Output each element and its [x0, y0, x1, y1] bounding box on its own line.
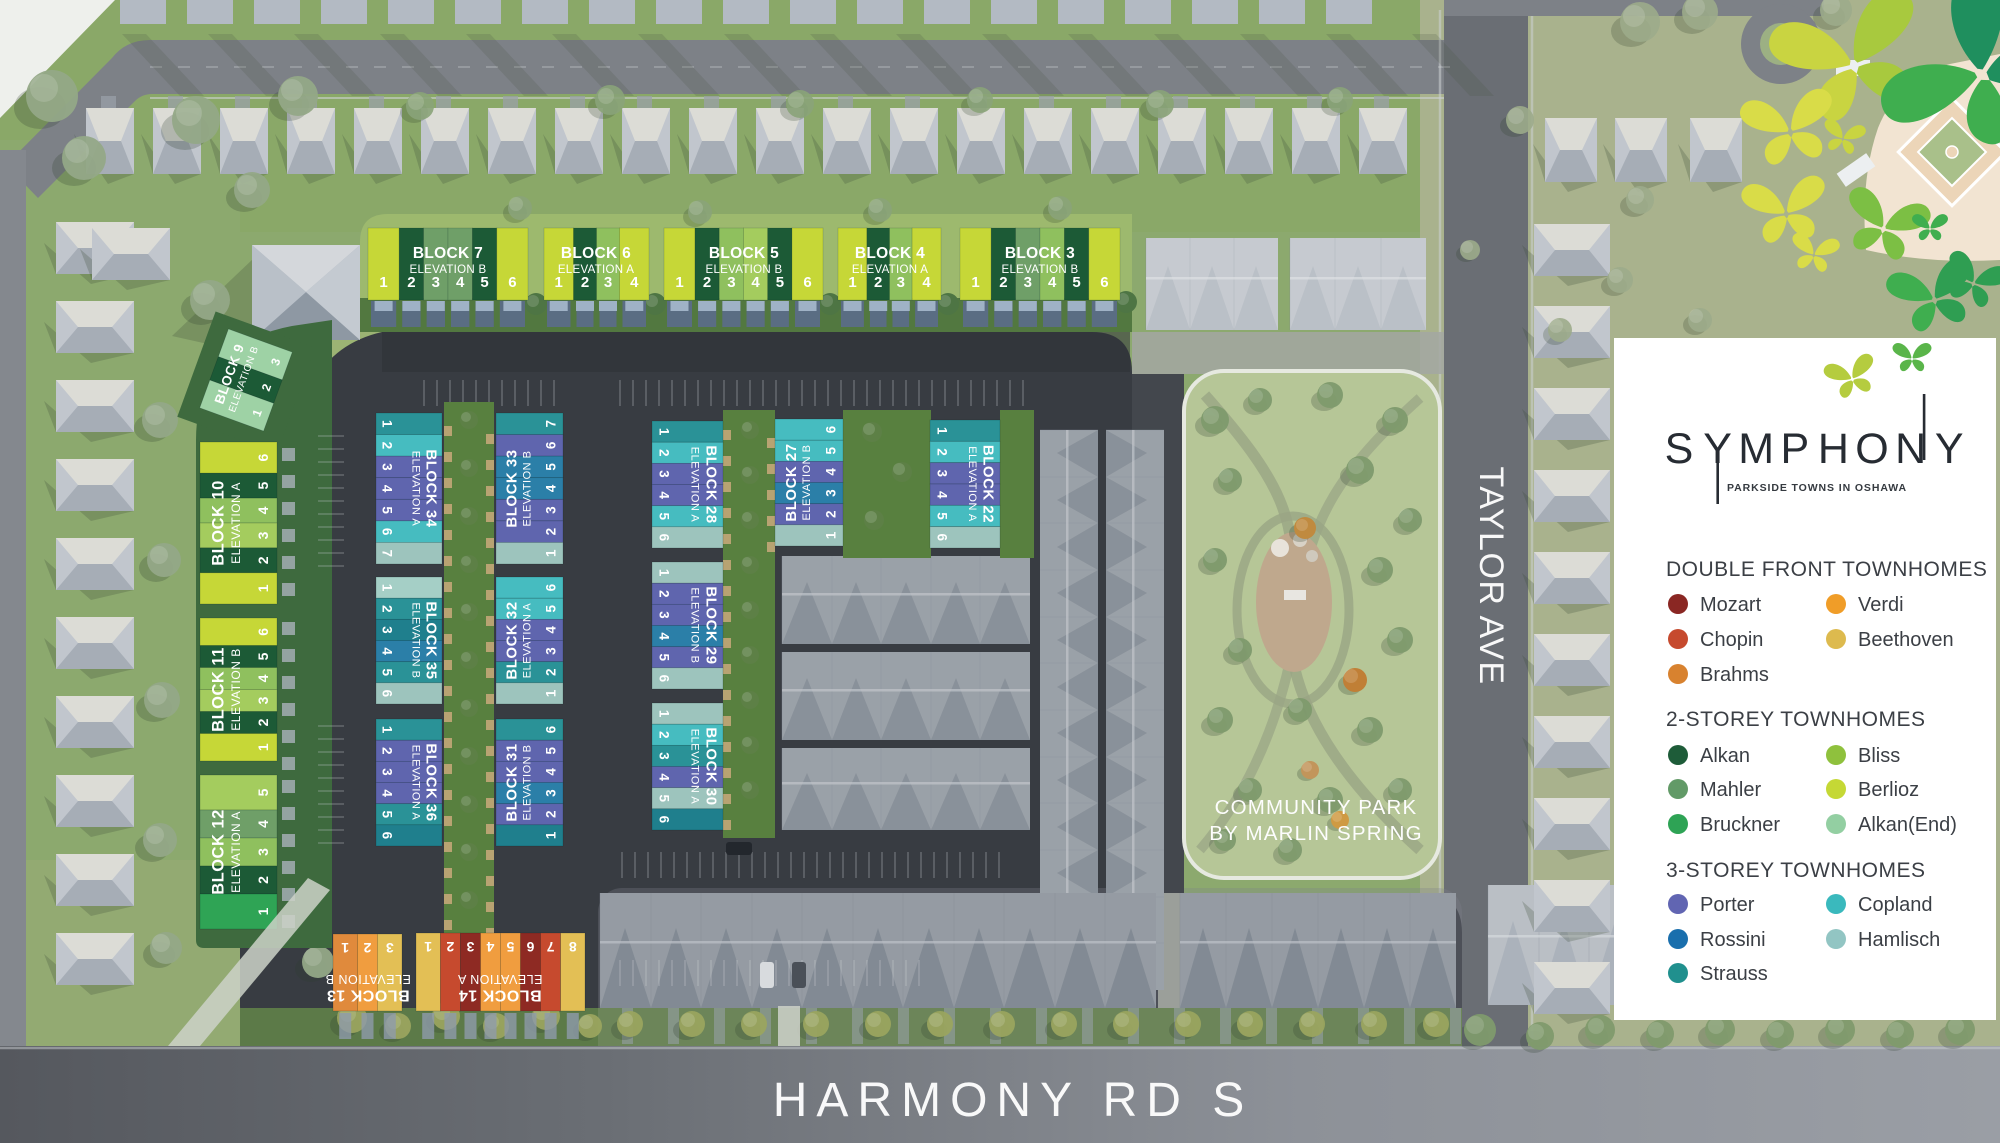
svg-text:5: 5 — [380, 810, 395, 818]
svg-text:6: 6 — [255, 453, 271, 461]
svg-text:ELEVATION A: ELEVATION A — [689, 447, 701, 523]
svg-text:2: 2 — [543, 810, 558, 818]
svg-text:ELEVATION A: ELEVATION A — [689, 729, 701, 805]
svg-text:2: 2 — [380, 747, 395, 755]
svg-text:6: 6 — [657, 675, 672, 683]
svg-text:2: 2 — [543, 668, 558, 676]
svg-text:P: P — [1780, 425, 1809, 473]
svg-text:5: 5 — [934, 512, 949, 520]
svg-text:1: 1 — [255, 907, 271, 915]
svg-text:5: 5 — [380, 506, 395, 514]
svg-text:BLOCK 10: BLOCK 10 — [210, 480, 228, 566]
svg-text:4: 4 — [543, 484, 558, 492]
svg-text:3: 3 — [657, 752, 672, 760]
svg-text:5: 5 — [480, 274, 488, 291]
svg-text:N: N — [1895, 425, 1926, 473]
svg-text:Alkan(End): Alkan(End) — [1858, 814, 1957, 836]
svg-text:BLOCK 30: BLOCK 30 — [702, 727, 719, 805]
svg-text:TAYLOR AVE: TAYLOR AVE — [1472, 466, 1510, 685]
svg-text:H: H — [1818, 425, 1849, 473]
svg-text:4: 4 — [657, 632, 672, 640]
svg-text:4: 4 — [255, 506, 271, 514]
svg-text:3: 3 — [543, 506, 558, 514]
svg-text:2: 2 — [657, 590, 672, 598]
svg-text:2: 2 — [581, 274, 589, 291]
svg-text:6: 6 — [543, 725, 558, 733]
svg-text:3: 3 — [255, 696, 271, 704]
svg-text:4: 4 — [823, 468, 838, 476]
svg-text:5: 5 — [255, 652, 271, 660]
svg-text:BLOCK 6: BLOCK 6 — [561, 245, 631, 262]
svg-text:2: 2 — [874, 274, 882, 291]
svg-text:5: 5 — [776, 274, 784, 291]
svg-text:Y: Y — [1935, 425, 1964, 473]
svg-text:Chopin: Chopin — [1700, 629, 1763, 651]
svg-text:HARMONY RD S: HARMONY RD S — [773, 1074, 1254, 1127]
svg-text:3: 3 — [543, 789, 558, 797]
svg-text:BLOCK 32: BLOCK 32 — [504, 601, 521, 679]
svg-text:ELEVATION A: ELEVATION A — [522, 603, 534, 679]
svg-text:O: O — [1855, 425, 1888, 473]
svg-text:ELEVATION B: ELEVATION B — [522, 744, 534, 820]
svg-text:ELEVATION B: ELEVATION B — [1001, 264, 1078, 276]
svg-text:1: 1 — [675, 274, 683, 291]
svg-text:6: 6 — [380, 832, 395, 840]
svg-text:4: 4 — [922, 274, 931, 291]
svg-text:Berlioz: Berlioz — [1858, 779, 1919, 801]
svg-text:7: 7 — [546, 939, 554, 955]
svg-text:Rossini: Rossini — [1700, 929, 1766, 951]
svg-text:4: 4 — [486, 939, 494, 955]
svg-text:2: 2 — [999, 274, 1007, 291]
svg-text:2: 2 — [657, 731, 672, 739]
svg-text:2: 2 — [380, 442, 395, 450]
svg-text:BLOCK 34: BLOCK 34 — [422, 449, 439, 527]
svg-text:ELEVATION B: ELEVATION B — [409, 264, 486, 276]
svg-text:BLOCK 22: BLOCK 22 — [980, 445, 997, 523]
svg-text:ELEVATION A: ELEVATION A — [966, 446, 978, 522]
svg-text:6: 6 — [823, 425, 838, 433]
svg-text:Bliss: Bliss — [1858, 745, 1900, 767]
svg-text:Alkan: Alkan — [1700, 745, 1750, 767]
svg-text:1: 1 — [543, 549, 558, 557]
svg-text:PARKSIDE TOWNS IN OSHAWA: PARKSIDE TOWNS IN OSHAWA — [1727, 482, 1907, 494]
svg-text:6: 6 — [380, 528, 395, 536]
svg-text:5: 5 — [255, 788, 271, 796]
svg-text:BLOCK 29: BLOCK 29 — [702, 586, 719, 664]
svg-text:ELEVATION A: ELEVATION A — [410, 745, 422, 821]
svg-text:2: 2 — [703, 274, 711, 291]
svg-text:2: 2 — [407, 274, 415, 291]
svg-text:ELEVATION A: ELEVATION A — [852, 264, 928, 276]
svg-text:Copland: Copland — [1858, 894, 1933, 916]
svg-text:BLOCK 4: BLOCK 4 — [855, 245, 925, 262]
svg-text:3: 3 — [543, 647, 558, 655]
svg-text:3: 3 — [657, 470, 672, 478]
svg-text:ELEVATION A: ELEVATION A — [229, 811, 243, 893]
svg-text:5: 5 — [657, 513, 672, 521]
svg-text:Mozart: Mozart — [1700, 594, 1762, 616]
svg-text:3: 3 — [432, 274, 440, 291]
svg-text:DOUBLE FRONT TOWNHOMES: DOUBLE FRONT TOWNHOMES — [1666, 558, 1987, 581]
svg-text:4: 4 — [255, 820, 271, 828]
svg-text:5: 5 — [1072, 274, 1080, 291]
svg-text:ELEVATION B: ELEVATION B — [705, 264, 782, 276]
svg-text:3: 3 — [466, 939, 474, 955]
svg-text:7: 7 — [380, 549, 395, 557]
svg-text:4: 4 — [630, 274, 639, 291]
svg-text:4: 4 — [456, 274, 465, 291]
svg-text:3: 3 — [380, 463, 395, 471]
svg-text:3: 3 — [380, 626, 395, 634]
svg-text:2: 2 — [657, 449, 672, 457]
svg-text:ELEVATION B: ELEVATION B — [801, 444, 813, 520]
svg-text:ELEVATION A: ELEVATION A — [410, 451, 422, 527]
svg-text:Hamlisch: Hamlisch — [1858, 929, 1940, 951]
svg-text:4: 4 — [934, 491, 949, 499]
svg-text:5: 5 — [543, 463, 558, 471]
svg-text:1: 1 — [543, 831, 558, 839]
svg-text:ELEVATION A: ELEVATION A — [558, 264, 634, 276]
svg-text:1: 1 — [255, 743, 271, 751]
svg-text:2: 2 — [380, 605, 395, 613]
svg-text:6: 6 — [1100, 274, 1108, 291]
svg-text:4: 4 — [380, 789, 395, 797]
svg-text:3: 3 — [386, 940, 394, 956]
svg-text:6: 6 — [543, 441, 558, 449]
svg-text:1: 1 — [657, 710, 672, 718]
svg-text:BLOCK 12: BLOCK 12 — [210, 809, 228, 895]
svg-text:6: 6 — [255, 628, 271, 636]
svg-text:5: 5 — [255, 481, 271, 489]
svg-text:Brahms: Brahms — [1700, 664, 1769, 686]
svg-text:ELEVATION A: ELEVATION A — [457, 972, 542, 986]
svg-text:BLOCK 11: BLOCK 11 — [210, 647, 228, 732]
svg-text:2: 2 — [543, 528, 558, 536]
svg-text:BLOCK 3: BLOCK 3 — [1005, 245, 1075, 262]
svg-text:4: 4 — [1048, 274, 1057, 291]
svg-text:5: 5 — [543, 747, 558, 755]
svg-text:6: 6 — [657, 534, 672, 542]
svg-text:1: 1 — [657, 569, 672, 577]
svg-text:6: 6 — [934, 534, 949, 542]
svg-text:BLOCK 5: BLOCK 5 — [709, 245, 779, 262]
svg-text:5: 5 — [657, 794, 672, 802]
svg-text:1: 1 — [380, 584, 395, 592]
svg-text:1: 1 — [380, 726, 395, 734]
svg-text:ELEVATION B: ELEVATION B — [229, 648, 243, 730]
svg-text:6: 6 — [508, 274, 516, 291]
svg-text:3: 3 — [255, 531, 271, 539]
svg-text:1: 1 — [380, 420, 395, 428]
svg-text:1: 1 — [848, 274, 856, 291]
svg-text:1: 1 — [657, 428, 672, 436]
svg-text:1: 1 — [341, 940, 349, 956]
svg-text:BLOCK 13: BLOCK 13 — [326, 987, 409, 1004]
svg-text:6: 6 — [543, 583, 558, 591]
svg-text:4: 4 — [543, 626, 558, 634]
svg-text:5: 5 — [506, 939, 514, 955]
svg-text:2: 2 — [255, 876, 271, 884]
svg-text:1: 1 — [379, 274, 387, 291]
svg-text:1: 1 — [823, 531, 838, 539]
svg-text:BLOCK 33: BLOCK 33 — [504, 449, 521, 527]
svg-text:S: S — [1665, 425, 1694, 473]
svg-text:Strauss: Strauss — [1700, 963, 1768, 985]
svg-text:3: 3 — [934, 470, 949, 478]
svg-text:4: 4 — [657, 773, 672, 781]
svg-text:3-STOREY TOWNHOMES: 3-STOREY TOWNHOMES — [1666, 859, 1926, 882]
svg-text:BY MARLIN SPRING: BY MARLIN SPRING — [1209, 822, 1423, 845]
svg-text:8: 8 — [569, 939, 577, 955]
svg-text:ELEVATION A: ELEVATION A — [229, 482, 243, 564]
svg-text:1: 1 — [424, 939, 432, 955]
svg-text:1: 1 — [543, 689, 558, 697]
svg-text:4: 4 — [380, 647, 395, 655]
svg-text:5: 5 — [657, 653, 672, 661]
svg-text:BLOCK 14: BLOCK 14 — [458, 987, 541, 1004]
svg-text:3: 3 — [255, 848, 271, 856]
svg-text:Bruckner: Bruckner — [1700, 814, 1780, 836]
svg-text:Mahler: Mahler — [1700, 779, 1761, 801]
svg-text:1: 1 — [255, 584, 271, 592]
svg-text:Beethoven: Beethoven — [1858, 629, 1954, 651]
svg-text:5: 5 — [543, 605, 558, 613]
svg-text:5: 5 — [380, 668, 395, 676]
svg-text:2: 2 — [255, 556, 271, 564]
svg-text:3: 3 — [604, 274, 612, 291]
svg-text:2: 2 — [823, 511, 838, 519]
svg-text:ELEVATION B: ELEVATION B — [325, 972, 411, 986]
svg-text:2: 2 — [363, 940, 371, 956]
svg-text:6: 6 — [526, 939, 534, 955]
svg-text:3: 3 — [380, 768, 395, 776]
svg-text:2-STOREY TOWNHOMES: 2-STOREY TOWNHOMES — [1666, 708, 1926, 731]
svg-text:1: 1 — [934, 427, 949, 435]
svg-text:BLOCK 28: BLOCK 28 — [702, 445, 719, 523]
svg-text:M: M — [1738, 425, 1774, 473]
svg-text:4: 4 — [380, 485, 395, 493]
svg-text:5: 5 — [823, 447, 838, 455]
svg-text:1: 1 — [555, 274, 563, 291]
svg-text:3: 3 — [727, 274, 735, 291]
svg-text:4: 4 — [657, 491, 672, 499]
svg-text:2: 2 — [255, 718, 271, 726]
svg-text:6: 6 — [803, 274, 811, 291]
svg-text:6: 6 — [657, 816, 672, 824]
svg-text:3: 3 — [823, 489, 838, 497]
svg-text:BLOCK 7: BLOCK 7 — [413, 245, 483, 262]
svg-text:4: 4 — [751, 274, 760, 291]
svg-text:7: 7 — [543, 420, 558, 428]
svg-text:4: 4 — [255, 674, 271, 682]
svg-text:3: 3 — [1024, 274, 1032, 291]
svg-text:Porter: Porter — [1700, 894, 1755, 916]
svg-text:BLOCK 27: BLOCK 27 — [783, 443, 800, 521]
svg-text:COMMUNITY PARK: COMMUNITY PARK — [1215, 796, 1418, 819]
svg-text:Verdi: Verdi — [1858, 594, 1904, 616]
svg-text:BLOCK 35: BLOCK 35 — [422, 601, 439, 679]
svg-text:4: 4 — [543, 768, 558, 776]
svg-text:3: 3 — [897, 274, 905, 291]
svg-text:ELEVATION B: ELEVATION B — [522, 450, 534, 526]
svg-text:BLOCK 36: BLOCK 36 — [422, 743, 439, 821]
svg-text:BLOCK 31: BLOCK 31 — [504, 743, 521, 821]
svg-text:ELEVATION B: ELEVATION B — [689, 587, 701, 663]
svg-text:2: 2 — [446, 939, 454, 955]
svg-text:2: 2 — [934, 448, 949, 456]
svg-text:1: 1 — [971, 274, 979, 291]
svg-text:ELEVATION B: ELEVATION B — [410, 602, 422, 678]
svg-text:3: 3 — [657, 611, 672, 619]
svg-text:6: 6 — [380, 690, 395, 698]
